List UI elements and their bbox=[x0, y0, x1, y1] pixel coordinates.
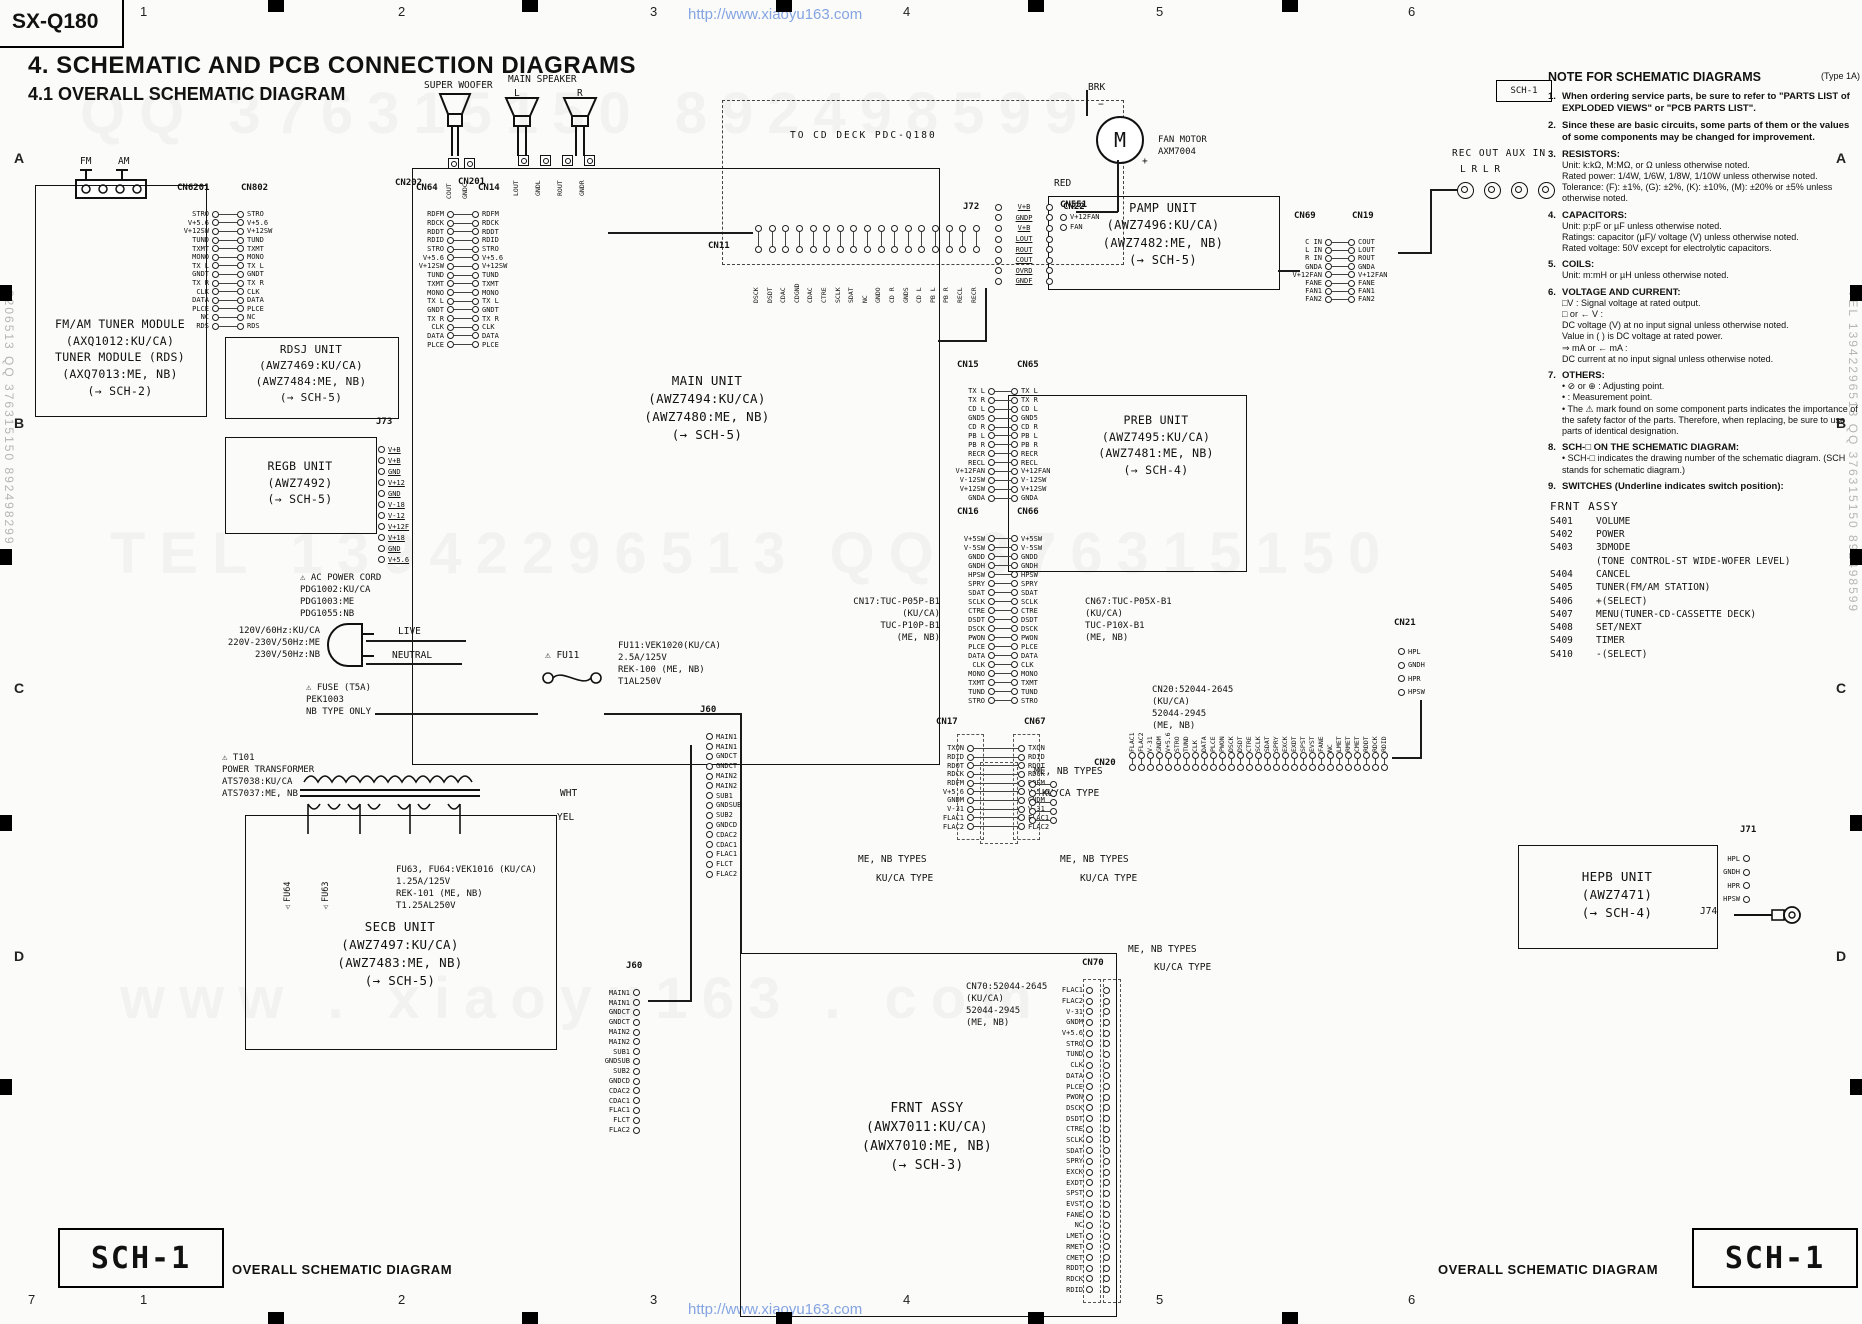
pin-icon bbox=[472, 211, 479, 218]
corner-number: 7 bbox=[28, 1292, 35, 1307]
motor-plus: + bbox=[1142, 156, 1148, 167]
pin-icon bbox=[1138, 752, 1145, 759]
pin-label: TUND bbox=[941, 688, 988, 696]
pin-icon bbox=[1743, 869, 1750, 876]
switch-row: S409TIMER bbox=[1548, 634, 1860, 647]
pin-icon bbox=[988, 571, 995, 578]
pin-icon bbox=[464, 158, 475, 169]
pin-icon bbox=[1282, 764, 1289, 771]
pin-label: V+12SW bbox=[941, 485, 988, 493]
connector-j60-main: J60MAIN1MAIN1GNDCTGNDCTMAIN2MAIN2SUB1GND… bbox=[706, 718, 760, 879]
pin-icon bbox=[1372, 764, 1379, 771]
pin-label: GNDCD bbox=[586, 1077, 633, 1085]
connector-cn16-cn66: CN16CN66V+5SWV+5SWV-5SWV-5SWGNDDGNDDGNDH… bbox=[941, 520, 1065, 705]
pin-label: SUB2 bbox=[713, 811, 760, 819]
pin-label: TXMT bbox=[244, 245, 293, 253]
pin-label: GNDT bbox=[163, 270, 212, 278]
rdsj-text: RDSJ UNIT (AWZ7469:KU/CA) (AWZ7484:ME, N… bbox=[228, 342, 394, 406]
pin-icon bbox=[447, 289, 454, 296]
pin-label: PLCE bbox=[1030, 1083, 1086, 1091]
pin-label: GNDM bbox=[1030, 1018, 1086, 1026]
pin-icon bbox=[1011, 406, 1018, 413]
pin-icon bbox=[988, 441, 995, 448]
grid-row-right: D bbox=[1836, 948, 1846, 964]
pin-icon bbox=[447, 306, 454, 313]
pin-icon bbox=[1129, 752, 1136, 759]
pin-label: FLAC1 bbox=[1030, 986, 1086, 994]
pin-icon bbox=[755, 246, 762, 253]
grid-col-top: 1 bbox=[140, 4, 147, 19]
pin-label: TXMT bbox=[479, 280, 526, 288]
pin-icon bbox=[378, 545, 385, 552]
registration-tick bbox=[1282, 1312, 1298, 1324]
pin-label: EXCK bbox=[1030, 1168, 1086, 1176]
pin-label: RECR bbox=[941, 450, 988, 458]
pin-icon bbox=[472, 324, 479, 331]
pin-icon bbox=[755, 225, 762, 232]
sch1-box-right: SCH-1 bbox=[1692, 1228, 1858, 1288]
pin-label: C IN bbox=[1280, 238, 1325, 246]
pin-label: TXMT bbox=[1018, 679, 1065, 687]
pin-icon bbox=[472, 228, 479, 235]
pin-icon bbox=[472, 306, 479, 313]
caption-left: OVERALL SCHEMATIC DIAGRAM bbox=[232, 1262, 452, 1277]
wht-label: WHT bbox=[560, 788, 577, 799]
pin-label: OVRD bbox=[1002, 267, 1046, 275]
pin-icon bbox=[447, 298, 454, 305]
pin-label: MONO bbox=[244, 253, 293, 261]
aux-in-l-jack bbox=[1511, 182, 1528, 199]
pin-label: TUND bbox=[479, 271, 526, 279]
pin-label: SPST bbox=[1299, 712, 1308, 752]
pin-icon bbox=[988, 607, 995, 614]
pin-label: NC bbox=[1030, 1221, 1086, 1229]
pin-label: DSCK bbox=[1227, 712, 1236, 752]
pin-icon bbox=[633, 1117, 640, 1124]
pin-icon bbox=[472, 332, 479, 339]
grid-col-bottom: 3 bbox=[650, 1292, 657, 1307]
pin-label: PWON bbox=[1030, 1093, 1086, 1101]
pin-label: GNDH bbox=[1018, 562, 1065, 570]
grid-row-left: D bbox=[14, 948, 24, 964]
pin-icon bbox=[706, 792, 713, 799]
connector-cn551: CN551V+12FANFAN bbox=[1060, 212, 1116, 232]
pin-icon bbox=[988, 697, 995, 704]
pin-icon bbox=[472, 263, 479, 270]
pin-label: SUB1 bbox=[713, 792, 760, 800]
pin-label: V-5SW bbox=[1018, 544, 1065, 552]
pin-icon bbox=[1192, 764, 1199, 771]
pin-label: V-5SW bbox=[941, 544, 988, 552]
pin-icon bbox=[1273, 752, 1280, 759]
pin-icon bbox=[988, 544, 995, 551]
pin-icon bbox=[1228, 764, 1235, 771]
sch1-ref-box: SCH-1 bbox=[1496, 80, 1552, 102]
pin-label: TUND bbox=[244, 236, 293, 244]
pin-label: PWON bbox=[941, 634, 988, 642]
pin-icon bbox=[1011, 477, 1018, 484]
registration-tick bbox=[1850, 285, 1862, 301]
pin-icon bbox=[378, 534, 385, 541]
note-item: 6.VOLTAGE AND CURRENT:□V : Signal voltag… bbox=[1548, 287, 1860, 366]
pin-label: RDDT bbox=[400, 228, 447, 236]
pin-icon bbox=[212, 237, 219, 244]
pin-icon bbox=[932, 225, 939, 232]
pin-label: V+5.6 bbox=[385, 556, 428, 564]
pin-icon bbox=[837, 246, 844, 253]
pin-label: FAN2 bbox=[1355, 295, 1400, 303]
grid-col-top: 4 bbox=[903, 4, 910, 19]
pin-icon bbox=[212, 323, 219, 330]
pin-label: SDAT bbox=[847, 253, 861, 303]
pin-icon bbox=[959, 225, 966, 232]
pin-label: V+5.6 bbox=[479, 254, 526, 262]
pin-label: V+B bbox=[1002, 224, 1046, 232]
pin-icon bbox=[633, 1097, 640, 1104]
pin-icon bbox=[1743, 882, 1750, 889]
pin-icon bbox=[988, 616, 995, 623]
pin-label: FLAC2 bbox=[586, 1126, 633, 1134]
pin-label: GNDP bbox=[1002, 214, 1046, 222]
fu63-label: ⚠FU63 bbox=[321, 866, 331, 912]
pin-icon bbox=[1050, 817, 1057, 824]
pin-icon bbox=[633, 1009, 640, 1016]
pin-icon bbox=[706, 802, 713, 809]
pin-icon bbox=[706, 841, 713, 848]
pin-icon bbox=[237, 254, 244, 261]
pin-label: V+12FAN bbox=[1355, 271, 1400, 279]
pin-label: PB R bbox=[1018, 441, 1065, 449]
connector-j60-secb: J60MAIN1MAIN1GNDCTGNDCTMAIN2MAIN2SUB1GND… bbox=[586, 974, 640, 1135]
pin-label: TXMT bbox=[163, 245, 212, 253]
pin-label: V+12F bbox=[385, 523, 428, 531]
pin-icon bbox=[1336, 764, 1343, 771]
pin-icon bbox=[1156, 752, 1163, 759]
grid-col-bottom: 1 bbox=[140, 1292, 147, 1307]
j74-label: J74 bbox=[1700, 906, 1717, 917]
pin-icon bbox=[706, 773, 713, 780]
connector-header: CN21 bbox=[1394, 618, 1416, 628]
pin-label: RDS bbox=[163, 322, 212, 330]
pin-icon bbox=[562, 155, 573, 166]
pin-label: TX L bbox=[163, 262, 212, 270]
pin-icon bbox=[1327, 752, 1334, 759]
note-item: 7.OTHERS:• ⊘ or ⊕ : Adjusting point.• : … bbox=[1548, 370, 1860, 437]
pin-label: NC bbox=[1326, 712, 1335, 752]
main-unit-text: MAIN UNIT (AWZ7494:KU/CA) (AWZ7480:ME, N… bbox=[622, 372, 792, 445]
pin-label: V+12SW bbox=[1018, 485, 1065, 493]
connector-header: CN66 bbox=[1017, 507, 1039, 517]
connector-cn21: CN21HPLGNDHHPRHPSW bbox=[1398, 631, 1444, 699]
pin-label: MAIN2 bbox=[586, 1028, 633, 1036]
pin-icon bbox=[1046, 236, 1053, 243]
connector-header: CN67 bbox=[1024, 717, 1046, 727]
pin-icon bbox=[706, 753, 713, 760]
cn17-inner-dash-box bbox=[980, 762, 1018, 844]
pin-label: DATA bbox=[400, 332, 447, 340]
pin-label: V-12SW bbox=[941, 476, 988, 484]
pin-icon bbox=[878, 246, 885, 253]
pin-label: V+5.6 bbox=[1030, 1029, 1086, 1037]
pin-label: RDDT bbox=[479, 228, 526, 236]
pin-label: FAN2 bbox=[1280, 295, 1325, 303]
pin-label: GNDT bbox=[400, 306, 447, 314]
pin-label: GND bbox=[385, 545, 428, 553]
pin-icon bbox=[633, 999, 640, 1006]
connector-cn69-cn19: CN69CN19C INCOUTL INLOUTR INROUTGNDAGNDA… bbox=[1280, 224, 1400, 304]
pin-label: TX R bbox=[1018, 396, 1065, 404]
pin-icon bbox=[1300, 764, 1307, 771]
pin-icon bbox=[1046, 278, 1053, 285]
pin-label: V+12FAN bbox=[1067, 213, 1116, 221]
pin-label: DSDT bbox=[1030, 1115, 1086, 1123]
cn67-kuca-label: KU/CA TYPE bbox=[1080, 873, 1137, 884]
model-number: SX-Q180 bbox=[12, 10, 98, 34]
pin-icon bbox=[1011, 450, 1018, 457]
pin-icon bbox=[1011, 544, 1018, 551]
pin-label: PLCE bbox=[479, 341, 526, 349]
pin-icon bbox=[1165, 752, 1172, 759]
pin-label: LMET bbox=[1335, 712, 1344, 752]
pin-label: CLK bbox=[1191, 712, 1200, 752]
pin-label: SCLK bbox=[834, 253, 848, 303]
main-speaker-label: MAIN SPEAKER bbox=[508, 74, 577, 85]
pin-icon bbox=[706, 871, 713, 878]
pin-icon bbox=[706, 861, 713, 868]
pin-label: DATA bbox=[244, 296, 293, 304]
caption-right: OVERALL SCHEMATIC DIAGRAM bbox=[1438, 1262, 1658, 1277]
connector-j73: J73V+BV+BGNDV+12GNDV-18V-12V+12FV+18GNDV… bbox=[378, 430, 428, 565]
pin-icon bbox=[378, 523, 385, 530]
pin-label: V-12SW bbox=[1018, 476, 1065, 484]
pin-icon bbox=[1273, 764, 1280, 771]
pin-icon bbox=[447, 324, 454, 331]
pin-icon bbox=[1348, 296, 1355, 303]
switch-row: S406+(SELECT) bbox=[1548, 595, 1860, 608]
pin-label: CDAC bbox=[806, 253, 820, 303]
fan-motor-label: FAN MOTOR AXM7004 bbox=[1158, 134, 1207, 158]
pin-label: TX R bbox=[163, 279, 212, 287]
pin-icon bbox=[706, 782, 713, 789]
registration-tick bbox=[0, 1079, 12, 1095]
main-speaker-r-icon bbox=[560, 96, 600, 158]
connector-header: J60 bbox=[626, 961, 642, 971]
pin-label: SPRY bbox=[1018, 580, 1065, 588]
registration-tick bbox=[776, 1312, 792, 1324]
note-item: 4.CAPACITORS:Unit: p:pF or µF unless oth… bbox=[1548, 210, 1860, 255]
pin-label: DSDT bbox=[1236, 712, 1245, 752]
pin-icon bbox=[212, 262, 219, 269]
pin-label: V-31 bbox=[1146, 712, 1155, 752]
pin-icon bbox=[1050, 790, 1057, 797]
pin-icon bbox=[237, 305, 244, 312]
note-item: 9.SWITCHES (Underline indicates switch p… bbox=[1548, 481, 1860, 492]
pin-label: V+5.6 bbox=[1164, 712, 1173, 752]
regb-text: REGB UNIT (AWZ7492) (→ SCH-5) bbox=[228, 458, 372, 508]
pin-icon bbox=[472, 272, 479, 279]
pin-icon bbox=[706, 733, 713, 740]
pin-icon bbox=[1237, 764, 1244, 771]
connector-header: CN20 bbox=[1094, 758, 1116, 768]
pin-label: FLCT bbox=[586, 1116, 633, 1124]
pin-label: STRO bbox=[1173, 712, 1182, 752]
pin-label: HPL bbox=[1700, 855, 1743, 863]
preb-text: PREB UNIT (AWZ7495:KU/CA) (AWZ7481:ME, N… bbox=[1072, 412, 1240, 479]
pin-icon bbox=[946, 225, 953, 232]
pin-icon bbox=[1046, 225, 1053, 232]
pin-icon bbox=[988, 589, 995, 596]
pin-icon bbox=[237, 219, 244, 226]
registration-tick bbox=[268, 1312, 284, 1324]
pin-label: SPST bbox=[1030, 1189, 1086, 1197]
connector-header: CN15 bbox=[957, 360, 979, 370]
pin-label: EXDT bbox=[1290, 712, 1299, 752]
pin-icon bbox=[1201, 752, 1208, 759]
pin-label: SDAT bbox=[1263, 712, 1272, 752]
pin-icon bbox=[1325, 239, 1332, 246]
pin-icon bbox=[837, 225, 844, 232]
pin-label: GND5 bbox=[1018, 414, 1065, 422]
pin-icon bbox=[1325, 296, 1332, 303]
registration-tick bbox=[1282, 0, 1298, 12]
pin-icon bbox=[988, 661, 995, 668]
pin-icon bbox=[472, 289, 479, 296]
pin-label: CD L bbox=[915, 253, 929, 303]
pin-icon bbox=[988, 652, 995, 659]
pin-icon bbox=[1011, 571, 1018, 578]
pin-icon bbox=[1246, 752, 1253, 759]
pin-label: V+5.6 bbox=[163, 219, 212, 227]
pin-label: GNDSUB bbox=[586, 1057, 633, 1065]
pin-label: SCLK bbox=[941, 598, 988, 606]
pin-label: HPSW bbox=[1405, 688, 1444, 696]
pin-label: RECL bbox=[956, 253, 970, 303]
pin-label: FAN1 bbox=[1280, 287, 1325, 295]
pin-icon bbox=[1325, 288, 1332, 295]
pin-icon bbox=[1011, 589, 1018, 596]
pin-label: MONO bbox=[400, 289, 447, 297]
pin-icon bbox=[959, 246, 966, 253]
switch-row: S402POWER bbox=[1548, 528, 1860, 541]
pin-icon bbox=[1147, 764, 1154, 771]
pin-icon bbox=[1255, 764, 1262, 771]
pin-label: STRO bbox=[1030, 1040, 1086, 1048]
pin-label: RDFM bbox=[479, 210, 526, 218]
grid-col-bottom: 6 bbox=[1408, 1292, 1415, 1307]
pin-icon bbox=[1348, 271, 1355, 278]
pin-label: SUB1 bbox=[586, 1048, 633, 1056]
pin-icon bbox=[769, 246, 776, 253]
switch-row: S4033DMODE bbox=[1548, 541, 1860, 554]
pin-icon bbox=[988, 415, 995, 422]
pin-icon bbox=[1264, 764, 1271, 771]
pin-label: GNDS bbox=[902, 253, 916, 303]
pin-label: FLAC1 bbox=[1128, 712, 1137, 752]
pin-label: RMET bbox=[1344, 712, 1353, 752]
pin-icon bbox=[633, 1078, 640, 1085]
pin-icon bbox=[1282, 752, 1289, 759]
pin-label: FANE bbox=[1030, 1211, 1086, 1219]
pin-icon bbox=[988, 432, 995, 439]
cn70-menb-dash-box bbox=[1083, 979, 1101, 1303]
rec-out-r-jack bbox=[1484, 182, 1501, 199]
connector-cn15-cn65: CN15CN65TX LTX LTX RTX RCD LCD LGND5GND5… bbox=[941, 373, 1065, 503]
pin-label: STRO bbox=[941, 697, 988, 705]
pin-label: V+12FAN bbox=[1280, 271, 1325, 279]
pin-icon bbox=[706, 831, 713, 838]
pin-label: V+B bbox=[1002, 203, 1046, 211]
pin-icon bbox=[1011, 415, 1018, 422]
super-woofer-icon bbox=[432, 92, 478, 158]
pin-icon bbox=[988, 495, 995, 502]
pin-label: GNDSUB bbox=[713, 801, 760, 809]
note-item: 3.RESISTORS:Unit: k:kΩ, M:MΩ, or Ω unles… bbox=[1548, 149, 1860, 205]
pin-icon bbox=[1050, 781, 1057, 788]
switch-row: S401VOLUME bbox=[1548, 515, 1860, 528]
pin-icon bbox=[472, 237, 479, 244]
pin-label: PB R bbox=[941, 441, 988, 449]
pin-icon bbox=[633, 1048, 640, 1055]
pin-icon bbox=[1325, 271, 1332, 278]
pin-label: CDAC1 bbox=[713, 841, 760, 849]
pin-icon bbox=[1011, 432, 1018, 439]
pin-label: PWON bbox=[1218, 712, 1227, 752]
switch-row: (TONE CONTROL-ST WIDE-WOFER LEVEL) bbox=[1548, 555, 1860, 568]
pin-icon bbox=[1011, 562, 1018, 569]
pin-label: MONO bbox=[479, 289, 526, 297]
pin-label: RDID bbox=[1380, 712, 1389, 752]
pin-icon bbox=[1325, 255, 1332, 262]
pin-icon bbox=[706, 763, 713, 770]
pin-icon bbox=[995, 278, 1002, 285]
note-item: 2.Since these are basic circuits, some p… bbox=[1548, 120, 1860, 144]
fu64-label: ⚠FU64 bbox=[283, 866, 293, 912]
cn70-kuca-label: KU/CA TYPE bbox=[1154, 962, 1211, 973]
pin-icon bbox=[1129, 764, 1136, 771]
pin-icon bbox=[1183, 764, 1190, 771]
ac-cord-note: ⚠ AC POWER CORD PDG1002:KU/CA PDG1003:ME… bbox=[300, 572, 381, 621]
grid-col-bottom: 5 bbox=[1156, 1292, 1163, 1307]
pin-icon bbox=[1183, 752, 1190, 759]
pin-label: GNDCT bbox=[586, 1008, 633, 1016]
connector-header: CN11 bbox=[708, 241, 730, 251]
connector-cn64-cn14: CN64CN14RDFMRDFMRDCKRDCKRDDTRDDTRDIDRDID… bbox=[400, 196, 526, 349]
pin-label: TUND bbox=[1018, 688, 1065, 696]
pin-icon bbox=[1138, 764, 1145, 771]
pin-icon bbox=[212, 305, 219, 312]
registration-tick bbox=[776, 0, 792, 12]
pin-icon bbox=[988, 535, 995, 542]
grid-row-left: C bbox=[14, 680, 24, 696]
pin-label: CMET bbox=[1030, 1254, 1086, 1262]
pin-icon bbox=[810, 225, 817, 232]
pin-icon bbox=[237, 288, 244, 295]
pin-label: TUND bbox=[1182, 712, 1191, 752]
pin-label: V+18 bbox=[385, 534, 428, 542]
pin-icon bbox=[447, 280, 454, 287]
pin-icon bbox=[1246, 764, 1253, 771]
pin-label: TX R bbox=[400, 315, 447, 323]
pin-label: CD R bbox=[941, 423, 988, 431]
pin-icon bbox=[378, 556, 385, 563]
pin-label: V+12FAN bbox=[941, 467, 988, 475]
pin-label: RECR bbox=[970, 253, 984, 303]
pin-icon bbox=[237, 211, 244, 218]
pin-icon bbox=[988, 634, 995, 641]
pin-icon bbox=[237, 228, 244, 235]
connector-header: CN551 bbox=[1060, 200, 1087, 210]
pin-icon bbox=[1336, 752, 1343, 759]
